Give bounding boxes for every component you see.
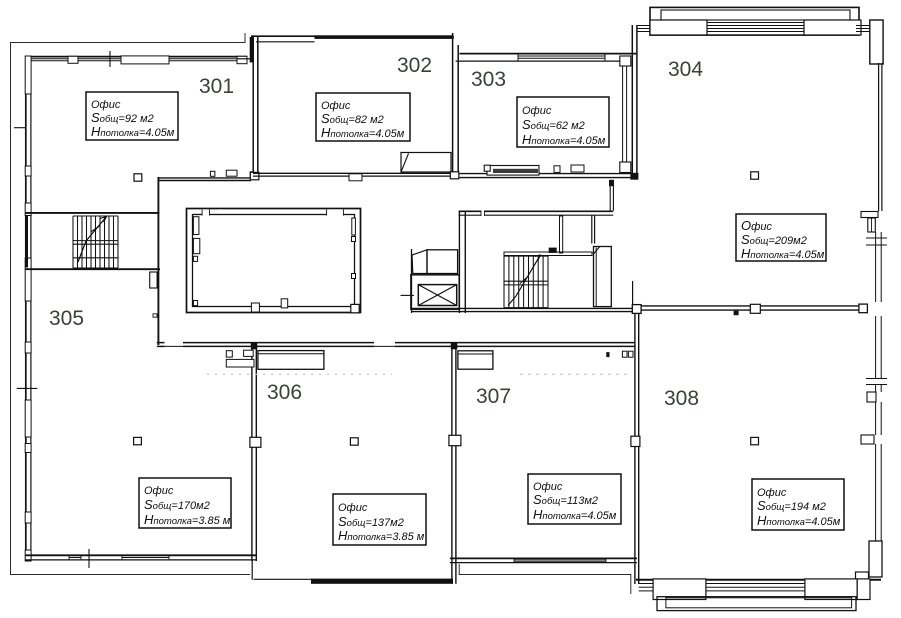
svg-text:307: 307 bbox=[476, 385, 511, 408]
svg-text:302: 302 bbox=[397, 54, 432, 77]
svg-text:306: 306 bbox=[267, 381, 302, 404]
svg-text:Офис: Офис bbox=[522, 105, 552, 117]
svg-text:Офис: Офис bbox=[741, 218, 772, 233]
svg-text:Офис: Офис bbox=[144, 485, 174, 497]
svg-text:Офис: Офис bbox=[338, 502, 368, 514]
svg-text:308: 308 bbox=[664, 387, 699, 410]
svg-text:304: 304 bbox=[668, 58, 703, 81]
svg-text:301: 301 bbox=[199, 75, 234, 98]
svg-text:303: 303 bbox=[471, 68, 506, 91]
svg-text:305: 305 bbox=[49, 307, 84, 330]
